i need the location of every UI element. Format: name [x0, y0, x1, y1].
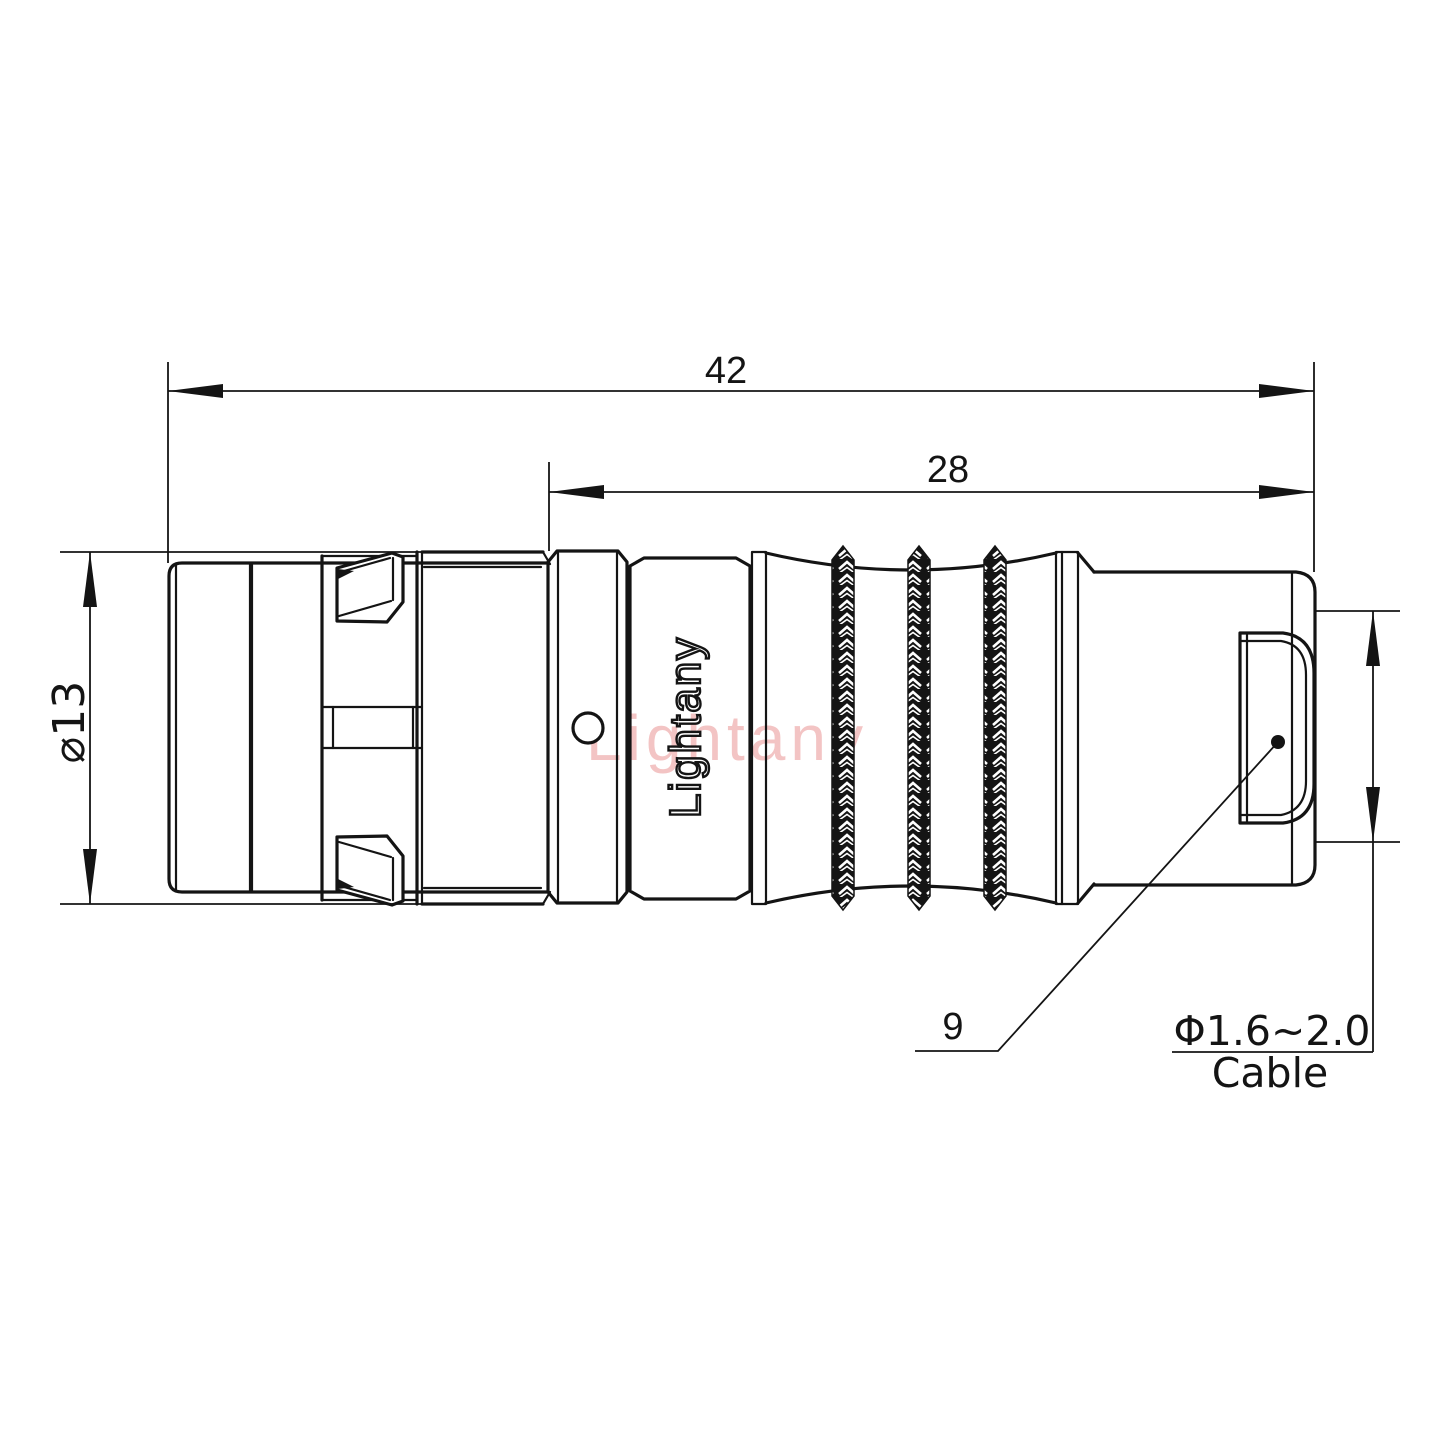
grip-left-band: [752, 552, 766, 904]
cable-word-text: Cable: [1212, 1049, 1328, 1097]
knurl-ring-2: [908, 546, 930, 910]
connector-body: Lightany: [169, 546, 1315, 910]
arrow-13-bottom: [83, 849, 97, 904]
dimension-front-length: 28: [549, 449, 1314, 551]
cable-entry-bushing: [1240, 633, 1314, 823]
latch-wedge-bottom: [337, 836, 403, 905]
callout-shell-size: 9: [915, 742, 1278, 1051]
taper-bottom: [1078, 884, 1094, 903]
arrow-28-left: [549, 485, 604, 499]
leader-line-9: [915, 742, 1278, 1051]
collar-hole: [573, 713, 603, 743]
rear-cylinder-outline: [1094, 572, 1315, 885]
collar-section: [548, 551, 627, 903]
technical-drawing-page: Lightany: [0, 0, 1440, 1440]
dim-value-13: ⌀13: [44, 681, 95, 763]
dimension-cable-entry: Φ1.6~2.0 Cable: [1172, 611, 1400, 1097]
grip-section: [752, 546, 1078, 910]
dim-value-28: 28: [927, 449, 969, 491]
taper-top: [1078, 553, 1094, 572]
connector-dimension-drawing: Lightany: [0, 0, 1440, 1440]
nut-section: [422, 552, 550, 904]
dimension-annotations: 42 28 ⌀13: [44, 350, 1400, 1097]
grip-right-band: [1056, 552, 1078, 904]
arrow-cable-bottom: [1366, 787, 1380, 842]
knurl-ring-1: [832, 546, 854, 910]
dimension-total-length: 42: [168, 350, 1314, 572]
arrow-42-left: [168, 384, 223, 398]
cable-diameter-text: Φ1.6~2.0: [1173, 1007, 1370, 1055]
brand-label: Lightany: [661, 636, 710, 818]
knurl-ring-3: [984, 546, 1006, 910]
shell-size-text: 9: [942, 1006, 963, 1048]
dim-value-42: 42: [705, 350, 747, 392]
bushing-inner: [1240, 641, 1306, 815]
bushing-outer: [1240, 633, 1314, 823]
arrow-28-right: [1259, 485, 1314, 499]
arrow-13-top: [83, 552, 97, 607]
arrow-cable-top: [1366, 611, 1380, 666]
arrow-42-right: [1259, 384, 1314, 398]
